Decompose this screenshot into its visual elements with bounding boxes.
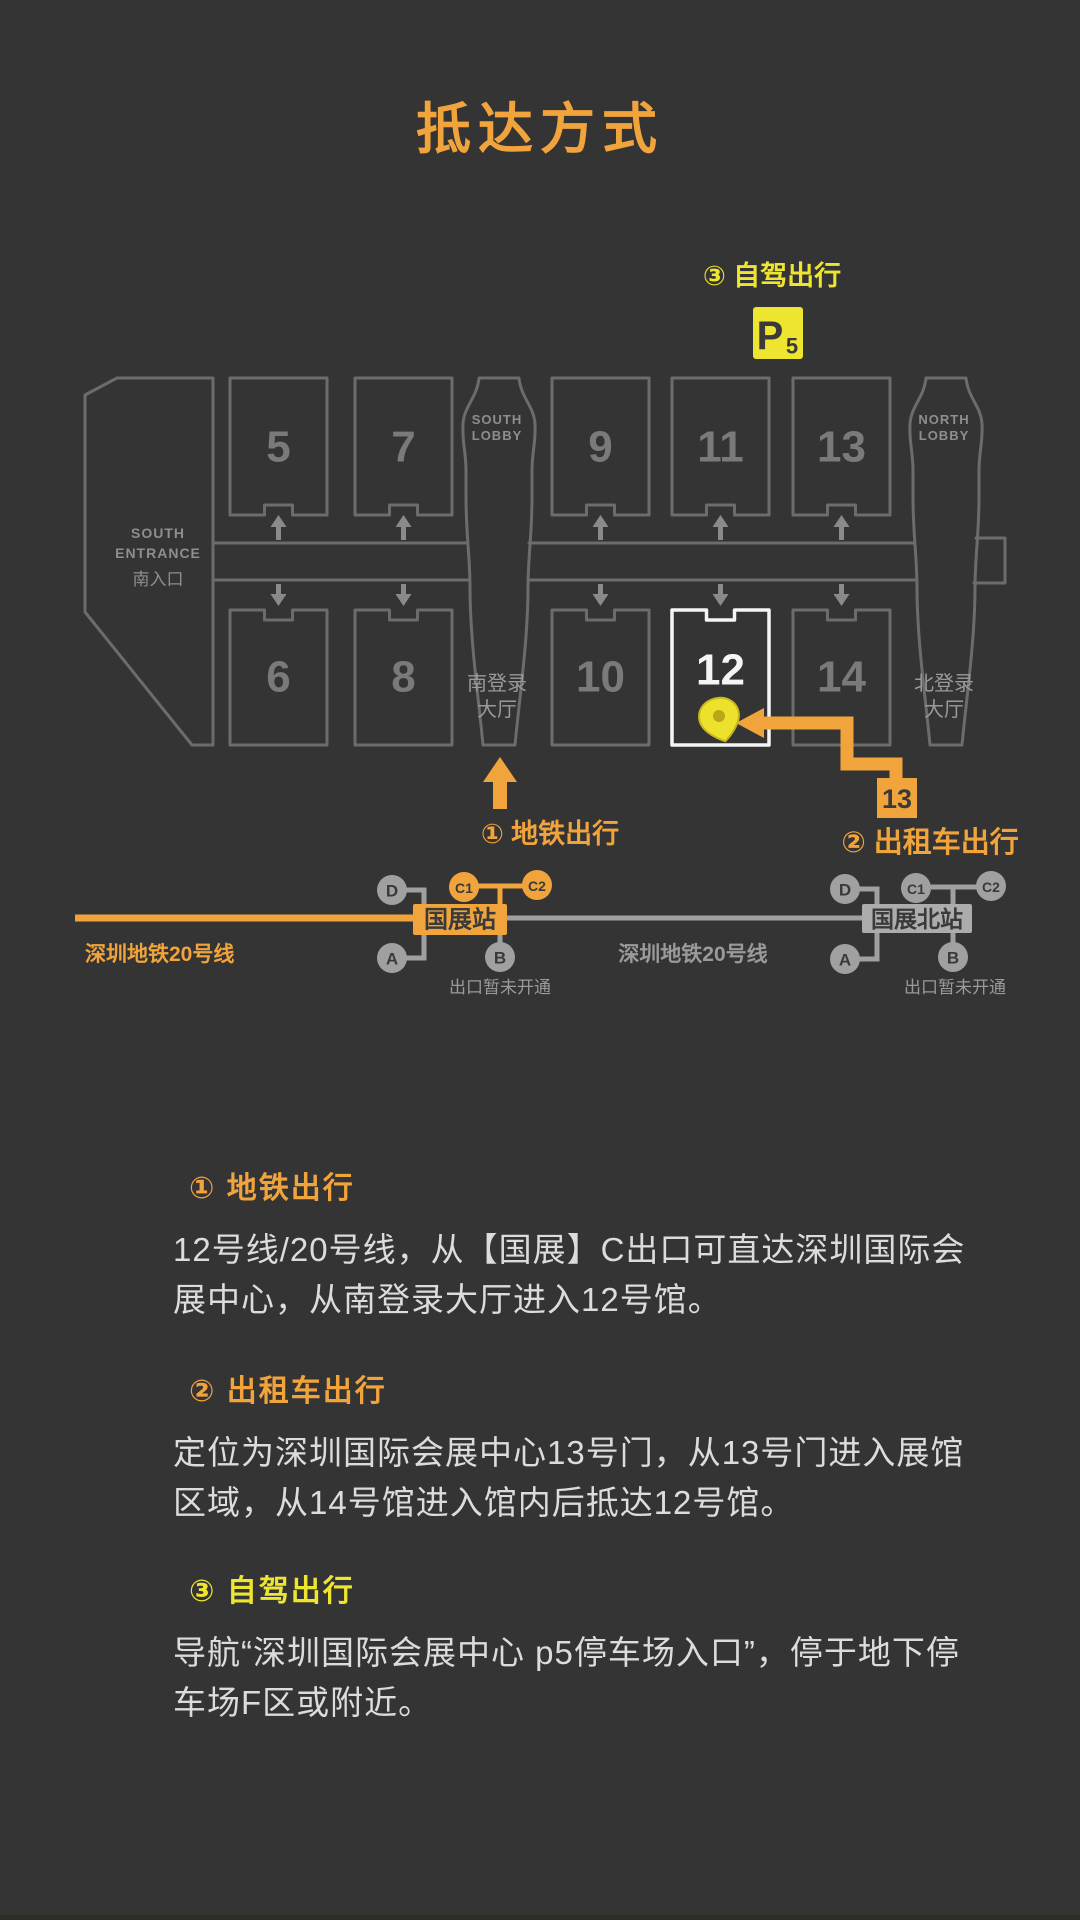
south-reg-hall-label-2: 大厅 xyxy=(477,698,517,721)
metro-diagram: 深圳地铁20号线 深圳地铁20号线 国展站 D A C1 C2 B 出口暂未开通 xyxy=(75,870,1006,997)
exit-c2-left: C2 xyxy=(528,878,546,894)
metro-exit-arrow xyxy=(483,757,517,809)
destination-pin-icon xyxy=(695,694,744,746)
station-guozhan-north-label: 国展北站 xyxy=(871,906,963,932)
hall-13-number: 13 xyxy=(817,423,866,472)
metro-line-20-mid-label: 深圳地铁20号线 xyxy=(618,942,767,966)
parking-p5-icon: P 5 xyxy=(753,307,803,359)
section-taxi-heading: ② 出租车出行 xyxy=(189,1366,973,1410)
south-entrance-outline xyxy=(85,378,213,745)
hall-6-number: 6 xyxy=(266,653,290,702)
north-reg-hall-label-2: 大厅 xyxy=(924,698,964,721)
section-metro-body: 12号线/20号线，从【国展】C出口可直达深圳国际会展中心，从南登录大厅进入12… xyxy=(173,1225,973,1325)
hall-10-number: 10 xyxy=(576,653,625,702)
station-guozhan-label: 国展站 xyxy=(424,907,496,934)
section-car-heading: ③ 自驾出行 xyxy=(189,1566,973,1610)
footer-strip xyxy=(0,1915,1080,1920)
section-car: ③ 自驾出行 导航“深圳国际会展中心 p5停车场入口”，停于地下停车场F区或附近… xyxy=(173,1566,973,1728)
section-metro: ① 地铁出行 12号线/20号线，从【国展】C出口可直达深圳国际会展中心，从南登… xyxy=(173,1163,973,1325)
hall-7-number: 7 xyxy=(391,423,415,472)
hall-9-number: 9 xyxy=(588,423,612,472)
exit-c1-left: C1 xyxy=(455,880,473,896)
exit-closed-note-right: 出口暂未开通 xyxy=(904,978,1006,997)
hall-14-number: 14 xyxy=(817,653,866,702)
south-lobby-label-1: SOUTH xyxy=(472,412,523,427)
taxi-callout-label: ② 出租车出行 xyxy=(841,825,1019,859)
exit-b-left: B xyxy=(494,949,506,968)
venue-map-svg: ③ 自驾出行 P 5 xyxy=(0,0,1080,1010)
south-entrance-label-2: ENTRANCE xyxy=(115,545,201,561)
hall-direction-arrows xyxy=(271,515,850,606)
hall-5-number: 5 xyxy=(266,423,290,472)
north-lobby-label-1: NORTH xyxy=(918,412,969,427)
exit-c2-right: C2 xyxy=(982,879,1000,895)
section-metro-heading: ① 地铁出行 xyxy=(189,1163,973,1207)
south-entrance-label-1: SOUTH xyxy=(131,525,185,541)
gate-13-label: 13 xyxy=(882,784,912,814)
parking-5-label: 5 xyxy=(786,334,798,359)
poster-canvas: 抵达方式 ③ 自驾出行 P 5 xyxy=(0,0,1080,1920)
east-gate-bump-outline xyxy=(974,538,1005,583)
metro-line-20-left-label: 深圳地铁20号线 xyxy=(85,942,234,966)
car-callout-label: ③ 自驾出行 xyxy=(703,260,841,291)
hall-12-number: 12 xyxy=(696,646,745,695)
exit-c1-right: C1 xyxy=(907,881,925,897)
exit-b-right: B xyxy=(947,949,959,968)
south-entrance-label-3: 南入口 xyxy=(133,570,184,589)
exit-d-right: D xyxy=(839,881,851,900)
parking-p-label: P xyxy=(757,314,784,358)
section-taxi-body: 定位为深圳国际会展中心13号门，从13号门进入展馆区域，从14号馆进入馆内后抵达… xyxy=(173,1428,973,1528)
exit-closed-note-left: 出口暂未开通 xyxy=(449,978,551,997)
north-lobby-label-2: LOBBY xyxy=(919,428,970,443)
metro-callout-label: ① 地铁出行 xyxy=(481,818,619,849)
exit-a-left: A xyxy=(386,950,398,969)
south-reg-hall-label-1: 南登录 xyxy=(467,672,527,695)
section-taxi: ② 出租车出行 定位为深圳国际会展中心13号门，从13号门进入展馆区域，从14号… xyxy=(173,1366,973,1528)
exit-d-left: D xyxy=(386,882,398,901)
taxi-route-arrowhead xyxy=(736,708,764,738)
station-guozhan-north: 国展北站 D A C1 C2 B 出口暂未开通 xyxy=(830,871,1006,997)
hall-8-number: 8 xyxy=(391,653,415,702)
exit-a-right: A xyxy=(839,951,851,970)
hall-11-number: 11 xyxy=(697,423,744,472)
south-lobby-label-2: LOBBY xyxy=(472,428,523,443)
section-car-body: 导航“深圳国际会展中心 p5停车场入口”，停于地下停车场F区或附近。 xyxy=(173,1628,973,1728)
north-reg-hall-label-1: 北登录 xyxy=(914,672,974,695)
station-guozhan: 国展站 D A C1 C2 B 出口暂未开通 xyxy=(377,870,552,997)
